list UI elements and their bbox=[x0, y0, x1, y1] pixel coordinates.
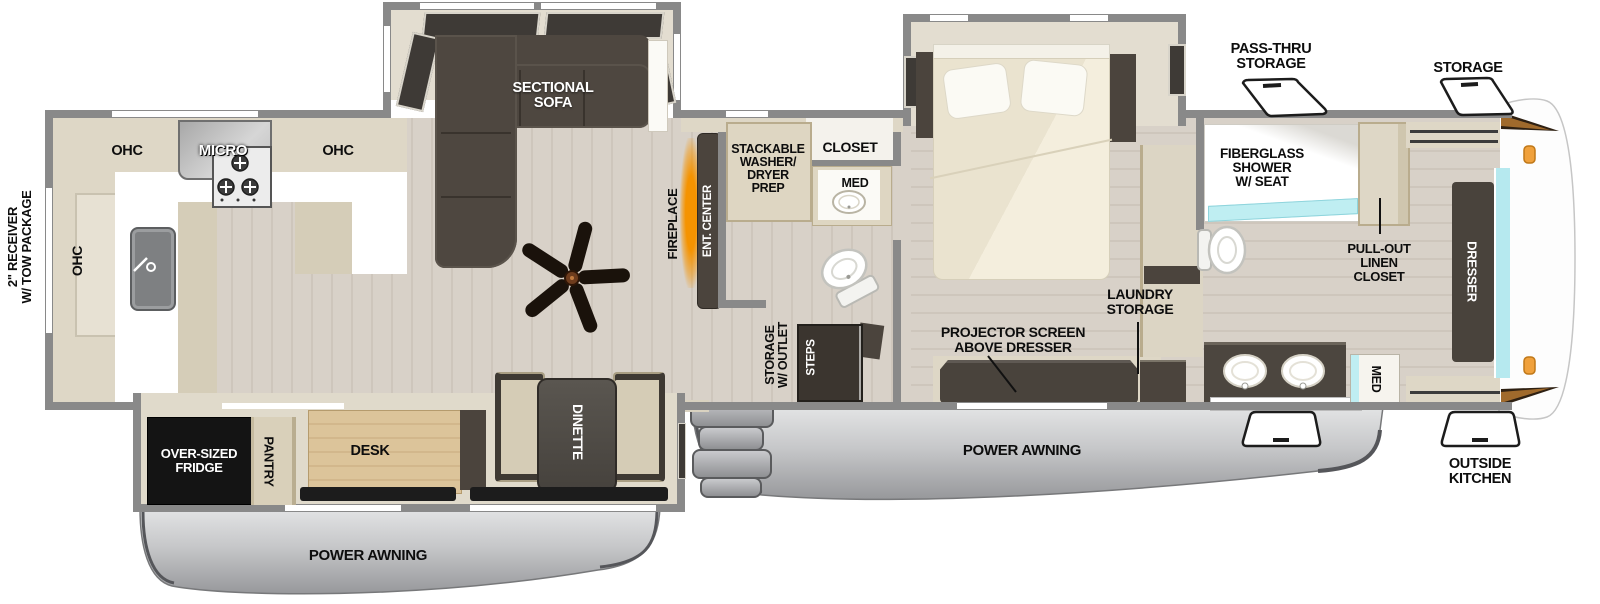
med-front-label: MED bbox=[1368, 356, 1382, 402]
faucet-icon bbox=[134, 258, 155, 271]
micro-label: MICRO bbox=[178, 141, 268, 161]
laundry-label: LAUNDRY STORAGE bbox=[1090, 286, 1190, 318]
steps-label: STEPS bbox=[806, 328, 819, 388]
projector-label: PROJECTOR SCREEN ABOVE DRESSER bbox=[918, 324, 1108, 356]
sink-icon bbox=[833, 191, 865, 213]
rv-floorplan: 2" RECEIVER W/ TOW PACKAGE OHC OHC MICRO… bbox=[0, 0, 1600, 604]
fridge-label: OVER-SIZED FRIDGE bbox=[147, 446, 251, 476]
pass-thru-label: PASS-THRU STORAGE bbox=[1206, 40, 1336, 74]
desk-label: DESK bbox=[335, 443, 405, 461]
dinette-label: DINETTE bbox=[569, 382, 585, 482]
detail-graphics bbox=[0, 0, 1600, 604]
ent-center-label: ENT. CENTER bbox=[701, 146, 715, 296]
toilet-icon bbox=[815, 242, 880, 310]
shower-label: FIBERGLASS SHOWER W/ SEAT bbox=[1197, 144, 1327, 192]
med-mid-label: MED bbox=[830, 176, 880, 191]
storage-outlet-label: STORAGE W/ OUTLET bbox=[762, 310, 792, 400]
fireplace-label: FIREPLACE bbox=[665, 159, 681, 289]
ohc-right-label: OHC bbox=[308, 143, 368, 161]
closet-label: CLOSET bbox=[805, 138, 895, 156]
sectional-sofa-label: SECTIONAL SOFA bbox=[488, 79, 618, 113]
toilet-icon bbox=[1198, 227, 1245, 273]
ceiling-fan-icon bbox=[520, 220, 631, 334]
power-awning-left-label: POWER AWNING bbox=[283, 547, 453, 565]
washer-prep-label: STACKABLE WASHER/ DRYER PREP bbox=[726, 140, 810, 198]
ohc-left-label: OHC bbox=[97, 143, 157, 161]
pantry-label: PANTRY bbox=[262, 420, 277, 504]
hitch-label: 2" RECEIVER W/ TOW PACKAGE bbox=[4, 162, 36, 332]
double-sink-icon bbox=[1224, 355, 1324, 389]
power-awning-right-label: POWER AWNING bbox=[932, 442, 1112, 460]
outside-kitchen-label: OUTSIDE KITCHEN bbox=[1425, 455, 1535, 489]
burner-icon bbox=[218, 155, 258, 202]
storage-label: STORAGE bbox=[1413, 60, 1523, 78]
dresser-label: DRESSER bbox=[1465, 217, 1480, 327]
linen-label: PULL-OUT LINEN CLOSET bbox=[1329, 240, 1429, 286]
ohc-rear-label: OHC bbox=[68, 231, 86, 291]
